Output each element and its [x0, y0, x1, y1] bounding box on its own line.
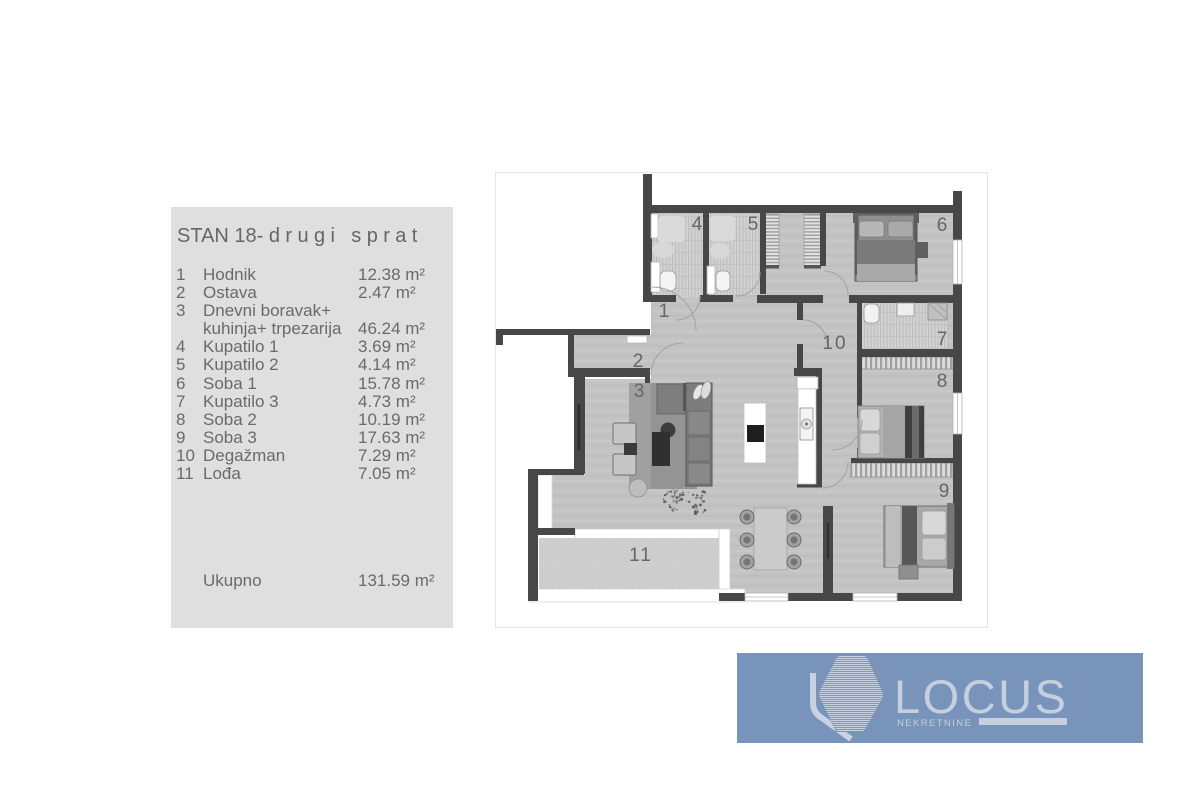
svg-text:NEKRETNINE: NEKRETNINE: [897, 718, 972, 729]
svg-text:3: 3: [634, 381, 645, 402]
svg-text:2: 2: [633, 351, 644, 372]
svg-text:1: 1: [659, 301, 670, 322]
svg-text:7: 7: [937, 329, 948, 350]
svg-text:8: 8: [937, 371, 948, 392]
svg-text:9: 9: [939, 481, 950, 502]
svg-text:10: 10: [822, 333, 847, 354]
svg-text:6: 6: [937, 215, 948, 236]
svg-text:11: 11: [629, 545, 653, 566]
svg-text:LOCUS: LOCUS: [894, 670, 1068, 723]
svg-text:5: 5: [748, 214, 759, 235]
svg-text:4: 4: [692, 214, 703, 235]
